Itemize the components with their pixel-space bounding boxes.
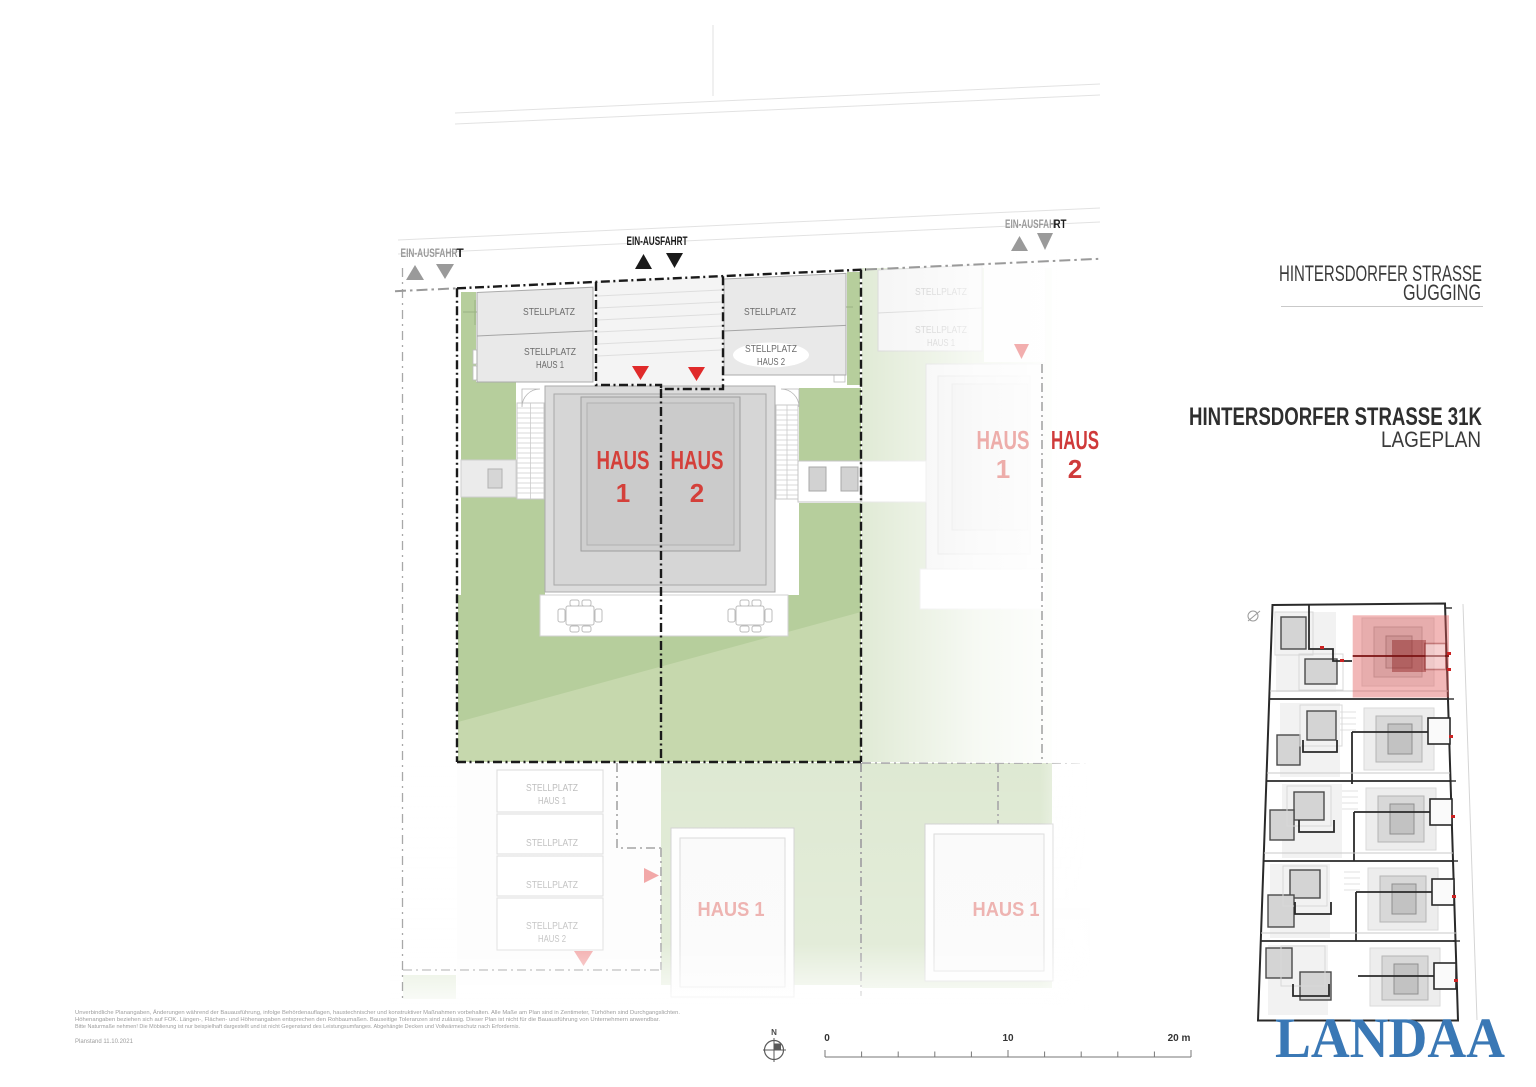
svg-text:LANDAA: LANDAA (1275, 1007, 1505, 1070)
svg-text:GUGGING: GUGGING (1403, 280, 1481, 305)
svg-text:20 m: 20 m (1168, 1033, 1191, 1044)
svg-text:STELLPLATZ: STELLPLATZ (523, 307, 575, 318)
svg-text:1: 1 (996, 454, 1010, 484)
svg-text:STELLPLATZ: STELLPLATZ (744, 307, 796, 318)
svg-text:HAUS 2: HAUS 2 (757, 357, 785, 368)
svg-text:1: 1 (616, 478, 630, 508)
svg-text:Höhenangaben beziehen sich auf: Höhenangaben beziehen sich auf FOK. Läng… (75, 1017, 661, 1023)
svg-text:0: 0 (824, 1033, 830, 1044)
svg-text:T: T (456, 246, 464, 260)
svg-text:EIN-AUSFAHR: EIN-AUSFAHR (401, 246, 458, 260)
svg-text:HAUS 1: HAUS 1 (536, 360, 564, 371)
svg-text:HAUS: HAUS (597, 445, 650, 475)
svg-text:HAUS: HAUS (1051, 425, 1099, 455)
svg-text:Bitte Naturmaße nehmen! Die Mö: Bitte Naturmaße nehmen! Die Möblierung i… (75, 1024, 520, 1030)
svg-text:2: 2 (690, 478, 704, 508)
svg-text:HAUS: HAUS (671, 445, 724, 475)
svg-text:N: N (771, 1028, 777, 1037)
svg-text:EIN-AUSFAHRT: EIN-AUSFAHRT (627, 234, 688, 248)
svg-text:Unverbindliche Planangaben, Än: Unverbindliche Planangaben, Änderungen w… (75, 1009, 680, 1016)
svg-text:HAUS: HAUS (977, 425, 1030, 455)
svg-text:RT: RT (1054, 217, 1068, 231)
svg-text:Planstand 11.10.2021: Planstand 11.10.2021 (75, 1039, 134, 1045)
svg-text:EIN-AUSFAH: EIN-AUSFAH (1005, 217, 1055, 231)
svg-text:STELLPLATZ: STELLPLATZ (524, 347, 576, 358)
svg-text:STELLPLATZ: STELLPLATZ (745, 344, 797, 355)
svg-text:LAGEPLAN: LAGEPLAN (1381, 427, 1481, 452)
svg-text:10: 10 (1002, 1033, 1014, 1044)
svg-text:2: 2 (1068, 454, 1082, 484)
